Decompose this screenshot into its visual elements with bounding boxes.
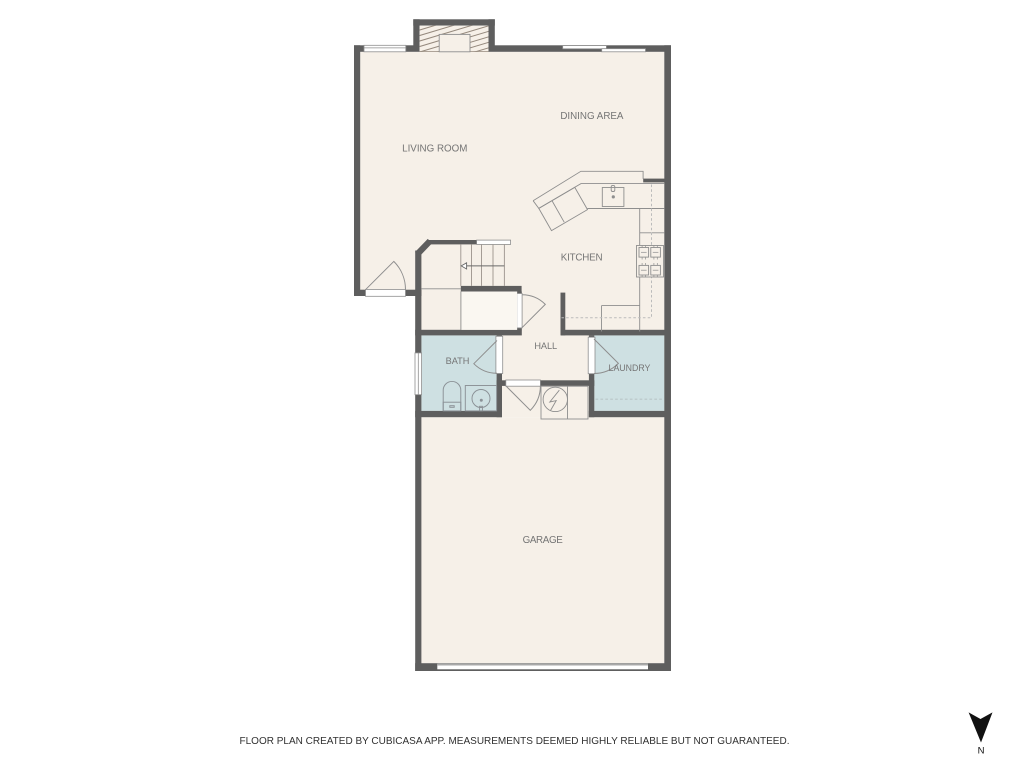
svg-text:N: N — [978, 746, 985, 757]
svg-text:HALL: HALL — [534, 341, 557, 351]
svg-text:LIVING ROOM: LIVING ROOM — [402, 144, 467, 155]
svg-text:DINING AREA: DINING AREA — [560, 111, 624, 122]
svg-text:LAUNDRY: LAUNDRY — [609, 363, 651, 373]
svg-text:BATH: BATH — [446, 356, 470, 366]
svg-text:KITCHEN: KITCHEN — [561, 253, 603, 264]
svg-text:GARAGE: GARAGE — [523, 535, 564, 546]
svg-text:FLOOR PLAN CREATED BY CUBICASA: FLOOR PLAN CREATED BY CUBICASA APP. MEAS… — [240, 736, 790, 747]
